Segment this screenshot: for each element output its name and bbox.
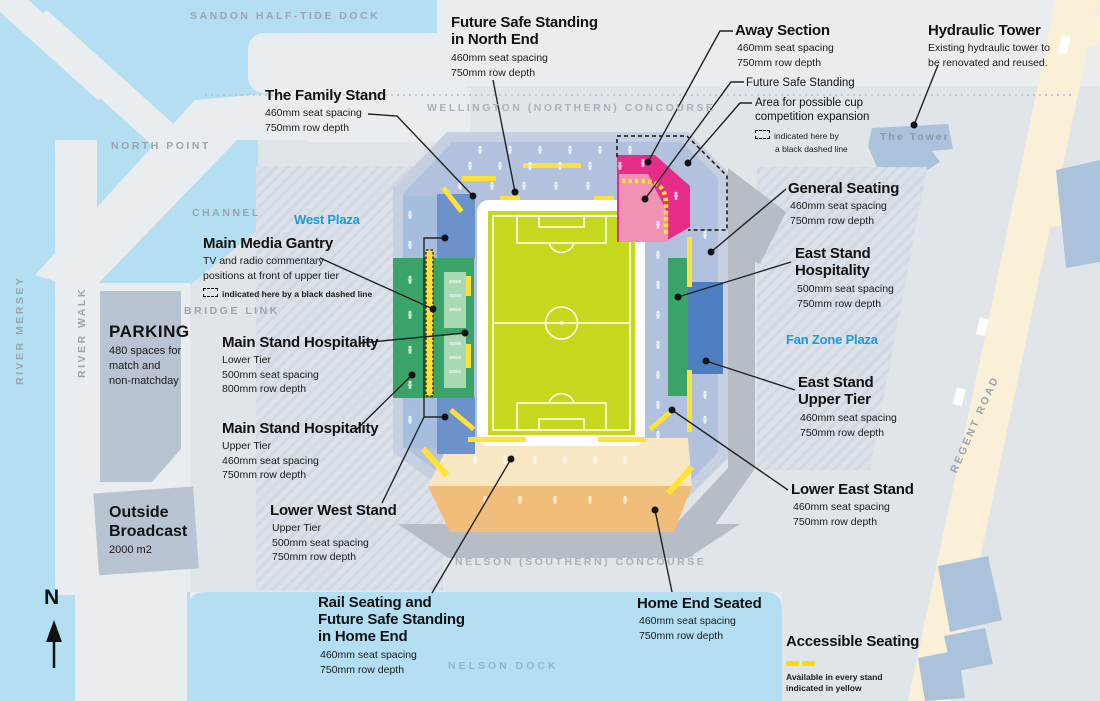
- callout-hydraulic-tower: Hydraulic Tower Existing hydraulic tower…: [928, 22, 1050, 70]
- callout-parking: PARKING 480 spaces for match and non-mat…: [109, 322, 190, 389]
- label-west-plaza: West Plaza: [294, 212, 360, 227]
- callout-lower-east-stand: Lower East Stand 460mm seat spacing 750m…: [791, 481, 914, 529]
- label-regent-road: REGENT ROAD: [948, 374, 1002, 475]
- label-sandon-dock: SANDON HALF-TIDE DOCK: [190, 10, 380, 22]
- annotation-layer: SANDON HALF-TIDE DOCK NORTH POINT CHANNE…: [0, 0, 1100, 701]
- callout-lower-west-stand: Lower West Stand Upper Tier 500mm seat s…: [270, 502, 397, 565]
- callout-rail-seating-home-end: Rail Seating and Future Safe Standing in…: [318, 594, 465, 677]
- callout-future-safe-standing: Future Safe Standing: [746, 76, 855, 90]
- callout-away-section: Away Section 460mm seat spacing 750mm ro…: [735, 22, 834, 70]
- dashed-box-icon: [755, 130, 770, 139]
- label-river-walk: RIVER WALK: [76, 287, 88, 378]
- accessible-yellow-dash-icon: [802, 661, 815, 666]
- label-the-tower: The Tower: [880, 131, 950, 143]
- callout-main-stand-hospitality-upper: Main Stand Hospitality Upper Tier 460mm …: [222, 420, 378, 483]
- accessible-yellow-dash-icon: [786, 661, 799, 666]
- label-nelson-concourse: NELSON (SOUTHERN) CONCOURSE: [455, 556, 706, 568]
- callout-main-media-gantry: Main Media Gantry TV and radio commentar…: [203, 235, 372, 302]
- callout-accessible-seating: Accessible Seating Available in every st…: [786, 633, 919, 693]
- label-fan-zone-plaza: Fan Zone Plaza: [786, 332, 878, 347]
- label-bridge-link: BRIDGE LINK: [184, 305, 280, 317]
- label-wellington-concourse: WELLINGTON (NORTHERN) CONCOURSE: [427, 102, 715, 114]
- stadium-plan-canvas: SANDON HALF-TIDE DOCK NORTH POINT CHANNE…: [0, 0, 1100, 701]
- callout-main-stand-hospitality-lower: Main Stand Hospitality Lower Tier 500mm …: [222, 334, 378, 397]
- callout-future-safe-standing-north: Future Safe Standing in North End 460mm …: [451, 14, 598, 80]
- callout-cup-expansion: Area for possible cup competition expans…: [755, 96, 869, 155]
- label-north-point: NORTH POINT: [111, 140, 211, 152]
- callout-east-stand-hospitality: East Stand Hospitality 500mm seat spacin…: [795, 245, 894, 311]
- callout-family-stand: The Family Stand 460mm seat spacing 750m…: [265, 87, 386, 135]
- label-river-mersey: RIVER MERSEY: [14, 276, 26, 385]
- label-channel: CHANNEL: [192, 207, 261, 219]
- callout-east-stand-upper-tier: East Stand Upper Tier 460mm seat spacing…: [798, 374, 897, 440]
- label-compass-north: N: [44, 586, 59, 610]
- callout-general-seating: General Seating 460mm seat spacing 750mm…: [788, 180, 899, 228]
- callout-outside-broadcast: Outside Broadcast 2000 m2: [109, 503, 187, 558]
- callout-home-end-seated: Home End Seated 460mm seat spacing 750mm…: [637, 595, 762, 643]
- dashed-box-icon: [203, 288, 218, 297]
